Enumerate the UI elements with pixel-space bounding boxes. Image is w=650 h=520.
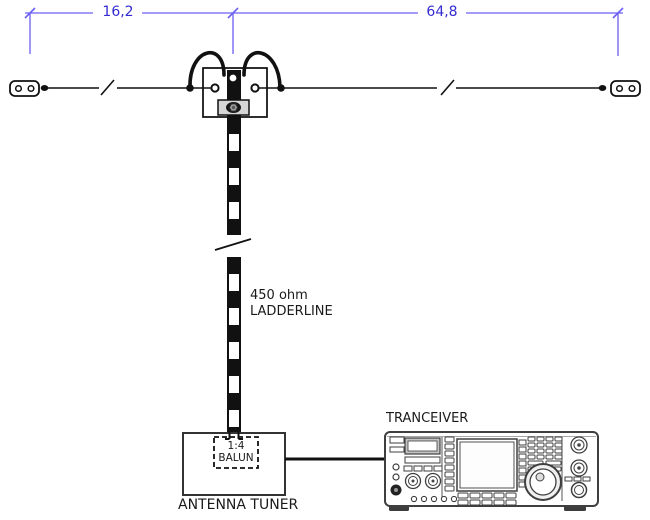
- antenna-diagram: 16,2 64,8 450 ohm LADDERLINE 1:4 BALUN A…: [0, 0, 650, 520]
- ladderline-label-impedance: 450 ohm: [250, 288, 308, 303]
- antenna-tuner-label: ANTENNA TUNER: [178, 497, 290, 513]
- wire-break-right: [441, 80, 454, 95]
- feedpoint-top-hole: [229, 74, 238, 83]
- dimension-label-right: 64,8: [418, 4, 466, 20]
- transceiver-drawing: [385, 432, 598, 511]
- ladder-break-symbol: [215, 239, 251, 250]
- feedpoint-terminal-right: [251, 84, 258, 91]
- dimension-label-left: 16,2: [94, 4, 142, 20]
- ladderline-label-name: LADDERLINE: [250, 304, 333, 319]
- ladder-line: [215, 117, 251, 432]
- balun-ratio-label: 1:4: [213, 440, 259, 452]
- balun-name-label: BALUN: [213, 452, 259, 464]
- wire-break-left: [101, 80, 114, 95]
- feedpoint-terminal-left: [211, 84, 218, 91]
- left-insulator: [10, 81, 39, 96]
- right-insulator: [611, 81, 640, 96]
- feedpoint-box: [203, 68, 267, 117]
- antenna-wire: [41, 80, 607, 95]
- transceiver-label: TRANCEIVER: [386, 411, 468, 426]
- diagram-line-art: [0, 0, 650, 520]
